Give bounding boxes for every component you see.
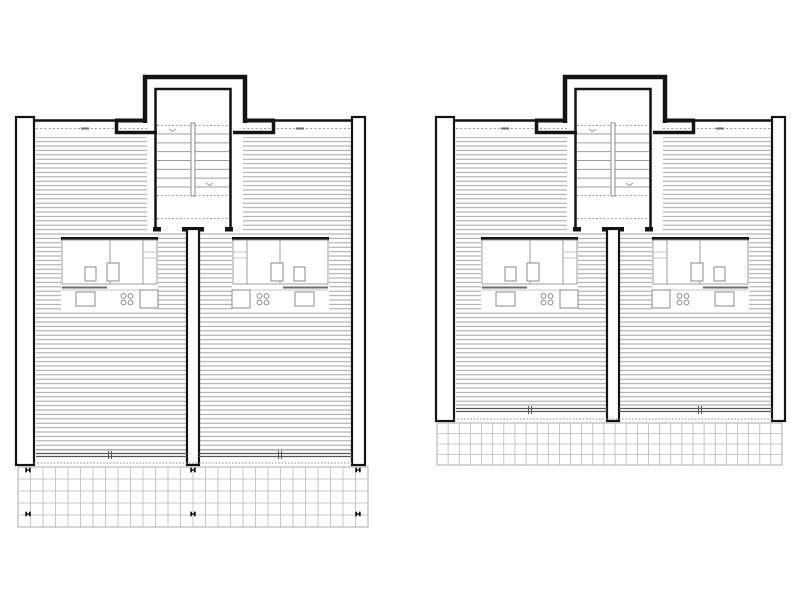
right-floor-plan: [436, 77, 785, 421]
party-wall: [607, 229, 619, 421]
side-wall: [16, 117, 34, 465]
stair-stringer: [191, 123, 195, 196]
base-cabinet: [560, 290, 578, 308]
stairwell: [573, 89, 653, 233]
architectural-drawing-sheet: [0, 0, 800, 600]
stairwell: [153, 89, 233, 233]
door-opening: [161, 227, 182, 233]
left-floor-plan: [16, 77, 365, 465]
side-wall: [352, 117, 365, 465]
terrace-grid: [437, 423, 782, 465]
door-opening: [204, 227, 225, 233]
door-opening: [624, 227, 645, 233]
duplex-floor-plans: [0, 0, 800, 600]
furniture: [107, 263, 119, 281]
furniture: [505, 267, 516, 281]
base-cabinet: [652, 290, 670, 308]
sink: [76, 292, 95, 306]
furniture: [714, 267, 725, 281]
dwelling-unit-left: [481, 236, 578, 310]
terrace-grid: [18, 467, 368, 527]
base-cabinet: [140, 290, 158, 308]
stair-stringer: [611, 123, 615, 196]
furniture: [527, 263, 539, 281]
dwelling-unit-right: [232, 236, 329, 310]
furniture: [691, 263, 703, 281]
sink: [295, 292, 314, 306]
dwelling-unit-right: [652, 236, 749, 310]
door-opening: [581, 227, 602, 233]
furniture: [271, 263, 283, 281]
dwelling-unit-left: [61, 236, 158, 310]
furniture: [85, 267, 96, 281]
furniture: [294, 267, 305, 281]
sink: [496, 292, 515, 306]
side-wall: [772, 117, 785, 421]
base-cabinet: [232, 290, 250, 308]
party-wall: [187, 229, 199, 465]
side-wall: [436, 117, 454, 421]
sink: [715, 292, 734, 306]
